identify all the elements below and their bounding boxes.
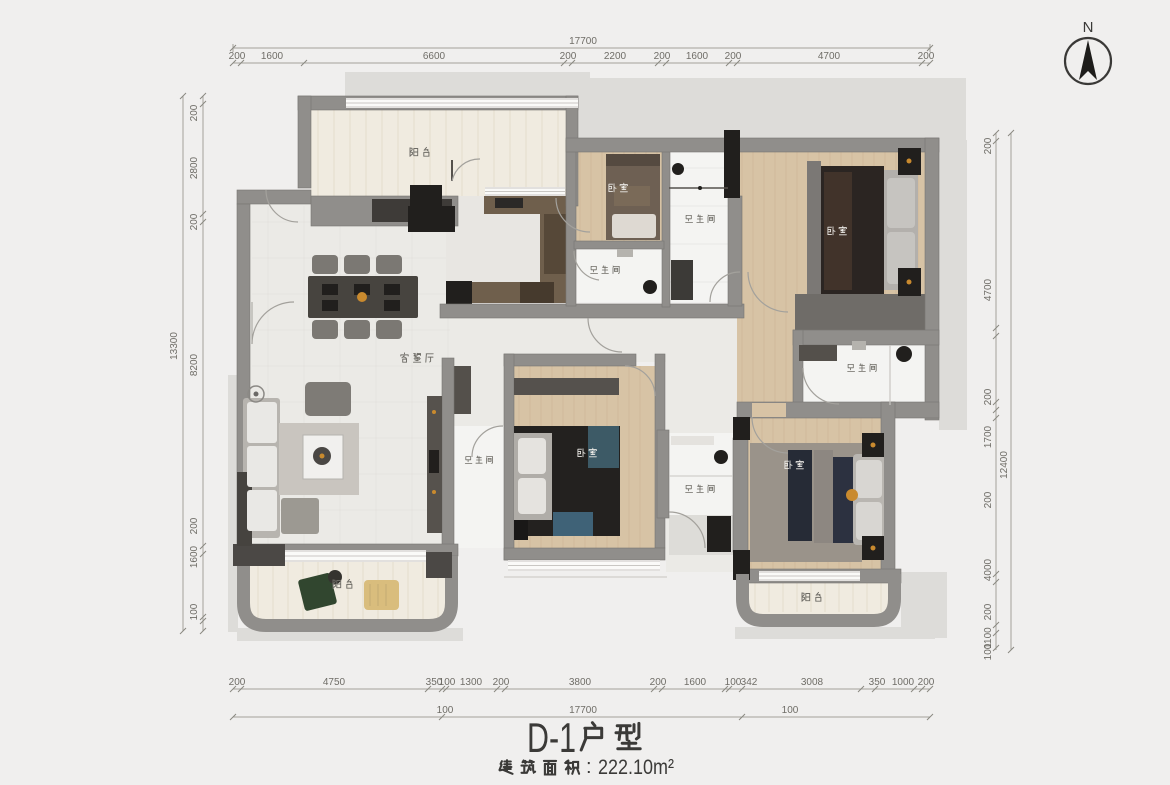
svg-text:2800: 2800 [189, 156, 200, 179]
svg-text:13300: 13300 [169, 332, 180, 360]
svg-text:1600: 1600 [684, 677, 707, 688]
svg-text:200: 200 [654, 51, 671, 62]
svg-text:200: 200 [983, 603, 994, 620]
svg-text:N: N [1083, 19, 1094, 36]
svg-text:100: 100 [725, 677, 742, 688]
svg-text:8200: 8200 [189, 353, 200, 376]
svg-text:1600: 1600 [189, 545, 200, 568]
svg-text:3800: 3800 [569, 677, 592, 688]
svg-text:4000: 4000 [983, 558, 994, 581]
svg-text:1300: 1300 [460, 677, 483, 688]
svg-text:200: 200 [229, 51, 246, 62]
svg-text:1600: 1600 [261, 51, 284, 62]
svg-text:200: 200 [983, 388, 994, 405]
svg-text:1600: 1600 [686, 51, 709, 62]
svg-text:1700: 1700 [983, 425, 994, 448]
svg-text:12400: 12400 [999, 451, 1010, 479]
svg-text:200: 200 [493, 677, 510, 688]
svg-text:200: 200 [229, 677, 246, 688]
svg-text::: : [586, 756, 592, 778]
svg-text:200: 200 [189, 104, 200, 121]
svg-text:350: 350 [869, 677, 886, 688]
svg-text:4700: 4700 [818, 51, 841, 62]
svg-text:17700: 17700 [569, 36, 597, 47]
svg-text:342: 342 [741, 677, 758, 688]
svg-text:D-1: D-1 [527, 714, 576, 761]
svg-text:200: 200 [918, 677, 935, 688]
svg-text:4750: 4750 [323, 677, 346, 688]
svg-text:200: 200 [650, 677, 667, 688]
svg-text:100: 100 [189, 603, 200, 620]
svg-text:200: 200 [560, 51, 577, 62]
svg-text:200: 200 [918, 51, 935, 62]
svg-text:100: 100 [983, 643, 994, 660]
svg-text:2200: 2200 [604, 51, 627, 62]
svg-text:3008: 3008 [801, 677, 824, 688]
svg-text:100: 100 [439, 677, 456, 688]
svg-text:100: 100 [437, 705, 454, 716]
svg-text:200: 200 [725, 51, 742, 62]
svg-text:100: 100 [782, 705, 799, 716]
svg-text:4700: 4700 [983, 278, 994, 301]
svg-text:200: 200 [983, 137, 994, 154]
svg-text:222.10m²: 222.10m² [598, 756, 674, 779]
svg-text:200: 200 [189, 213, 200, 230]
svg-text:1000: 1000 [892, 677, 915, 688]
svg-text:200: 200 [983, 491, 994, 508]
svg-text:200: 200 [189, 517, 200, 534]
svg-text:6600: 6600 [423, 51, 446, 62]
